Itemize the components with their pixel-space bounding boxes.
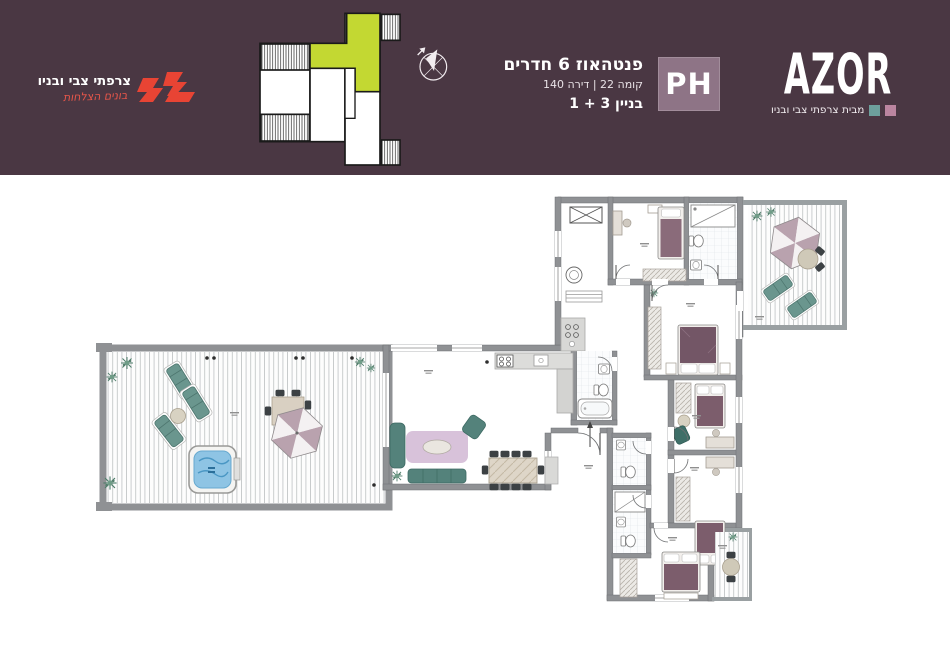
- wardrobe: [676, 383, 691, 413]
- developer-tagline: בונים הצלחות: [62, 89, 127, 104]
- floor-plan: [0, 175, 950, 650]
- living-room: [390, 370, 544, 490]
- desk: [613, 211, 622, 235]
- kitchen: [485, 318, 585, 413]
- bathroom-b: [613, 490, 651, 553]
- terrace-table: [798, 249, 818, 269]
- bathroom-top: [689, 203, 737, 285]
- chaise: [390, 423, 405, 468]
- penthouse-badge: PH: [658, 57, 720, 111]
- developer-logo: צרפתי צבי ובניו בונים הצלחות: [42, 66, 197, 112]
- developer-logo-icon: [137, 70, 197, 104]
- shower: [615, 492, 645, 512]
- bed: [662, 552, 700, 592]
- spotlight: [485, 360, 489, 364]
- washer-icon: [566, 267, 582, 283]
- bench: [664, 593, 698, 599]
- stove-icon: [497, 355, 513, 367]
- terrace-main: [96, 343, 389, 511]
- page: צרפתי צבי ובניו בונים הצלחות: [0, 0, 950, 650]
- unit-info: פנטהאוז 6 חדרים קומה 22 | דירה 140 בניין…: [483, 55, 643, 113]
- kitchen-sink-icon: [534, 355, 548, 366]
- brand-name: AZOR: [783, 44, 893, 105]
- hob-icon: [561, 318, 585, 351]
- shower: [691, 205, 735, 227]
- bathroom-main: [577, 351, 617, 420]
- nightstand: [666, 363, 676, 374]
- single-bed: [658, 207, 684, 259]
- jacuzzi: [189, 446, 240, 493]
- double-bed: [678, 325, 718, 375]
- wardrobe: [620, 559, 637, 597]
- brand-logo: AZOR מבית צרפתי צבי ובניו: [771, 44, 905, 116]
- desk: [706, 429, 734, 448]
- nightstand: [720, 363, 730, 374]
- side-table: [678, 415, 690, 427]
- terrace-upper: [737, 205, 842, 325]
- vent: [566, 291, 602, 302]
- desk-chair: [623, 219, 631, 227]
- master-bedroom: [648, 279, 730, 375]
- wardrobe: [676, 477, 690, 521]
- building-key-plan: [250, 5, 460, 175]
- bed: [695, 384, 725, 428]
- balcony-table: [723, 559, 740, 576]
- header-band: צרפתי צבי ובניו בונים הצלחות: [0, 0, 950, 175]
- desk: [706, 457, 734, 476]
- unit-floor-apartment: קומה 22 | דירה 140: [483, 77, 643, 93]
- unit-type: פנטהאוז 6 חדרים: [483, 55, 643, 75]
- compass-icon: [418, 47, 447, 80]
- utility-room: [566, 207, 602, 302]
- side-table: [171, 409, 186, 424]
- wardrobe: [648, 307, 661, 369]
- bedroom-2: [613, 205, 686, 285]
- keyplan-balcony-hatch: [261, 44, 310, 70]
- windows: [383, 231, 742, 601]
- entry-step: [545, 457, 558, 484]
- bedroom-3: [668, 383, 734, 448]
- bathtub-icon: [578, 399, 612, 418]
- bathroom-a: [613, 438, 651, 485]
- balcony: [715, 532, 749, 597]
- developer-name: צרפתי צבי ובניו: [38, 74, 131, 89]
- coffee-table: [423, 440, 451, 454]
- unit-building: בניין 3 + 1: [483, 95, 643, 113]
